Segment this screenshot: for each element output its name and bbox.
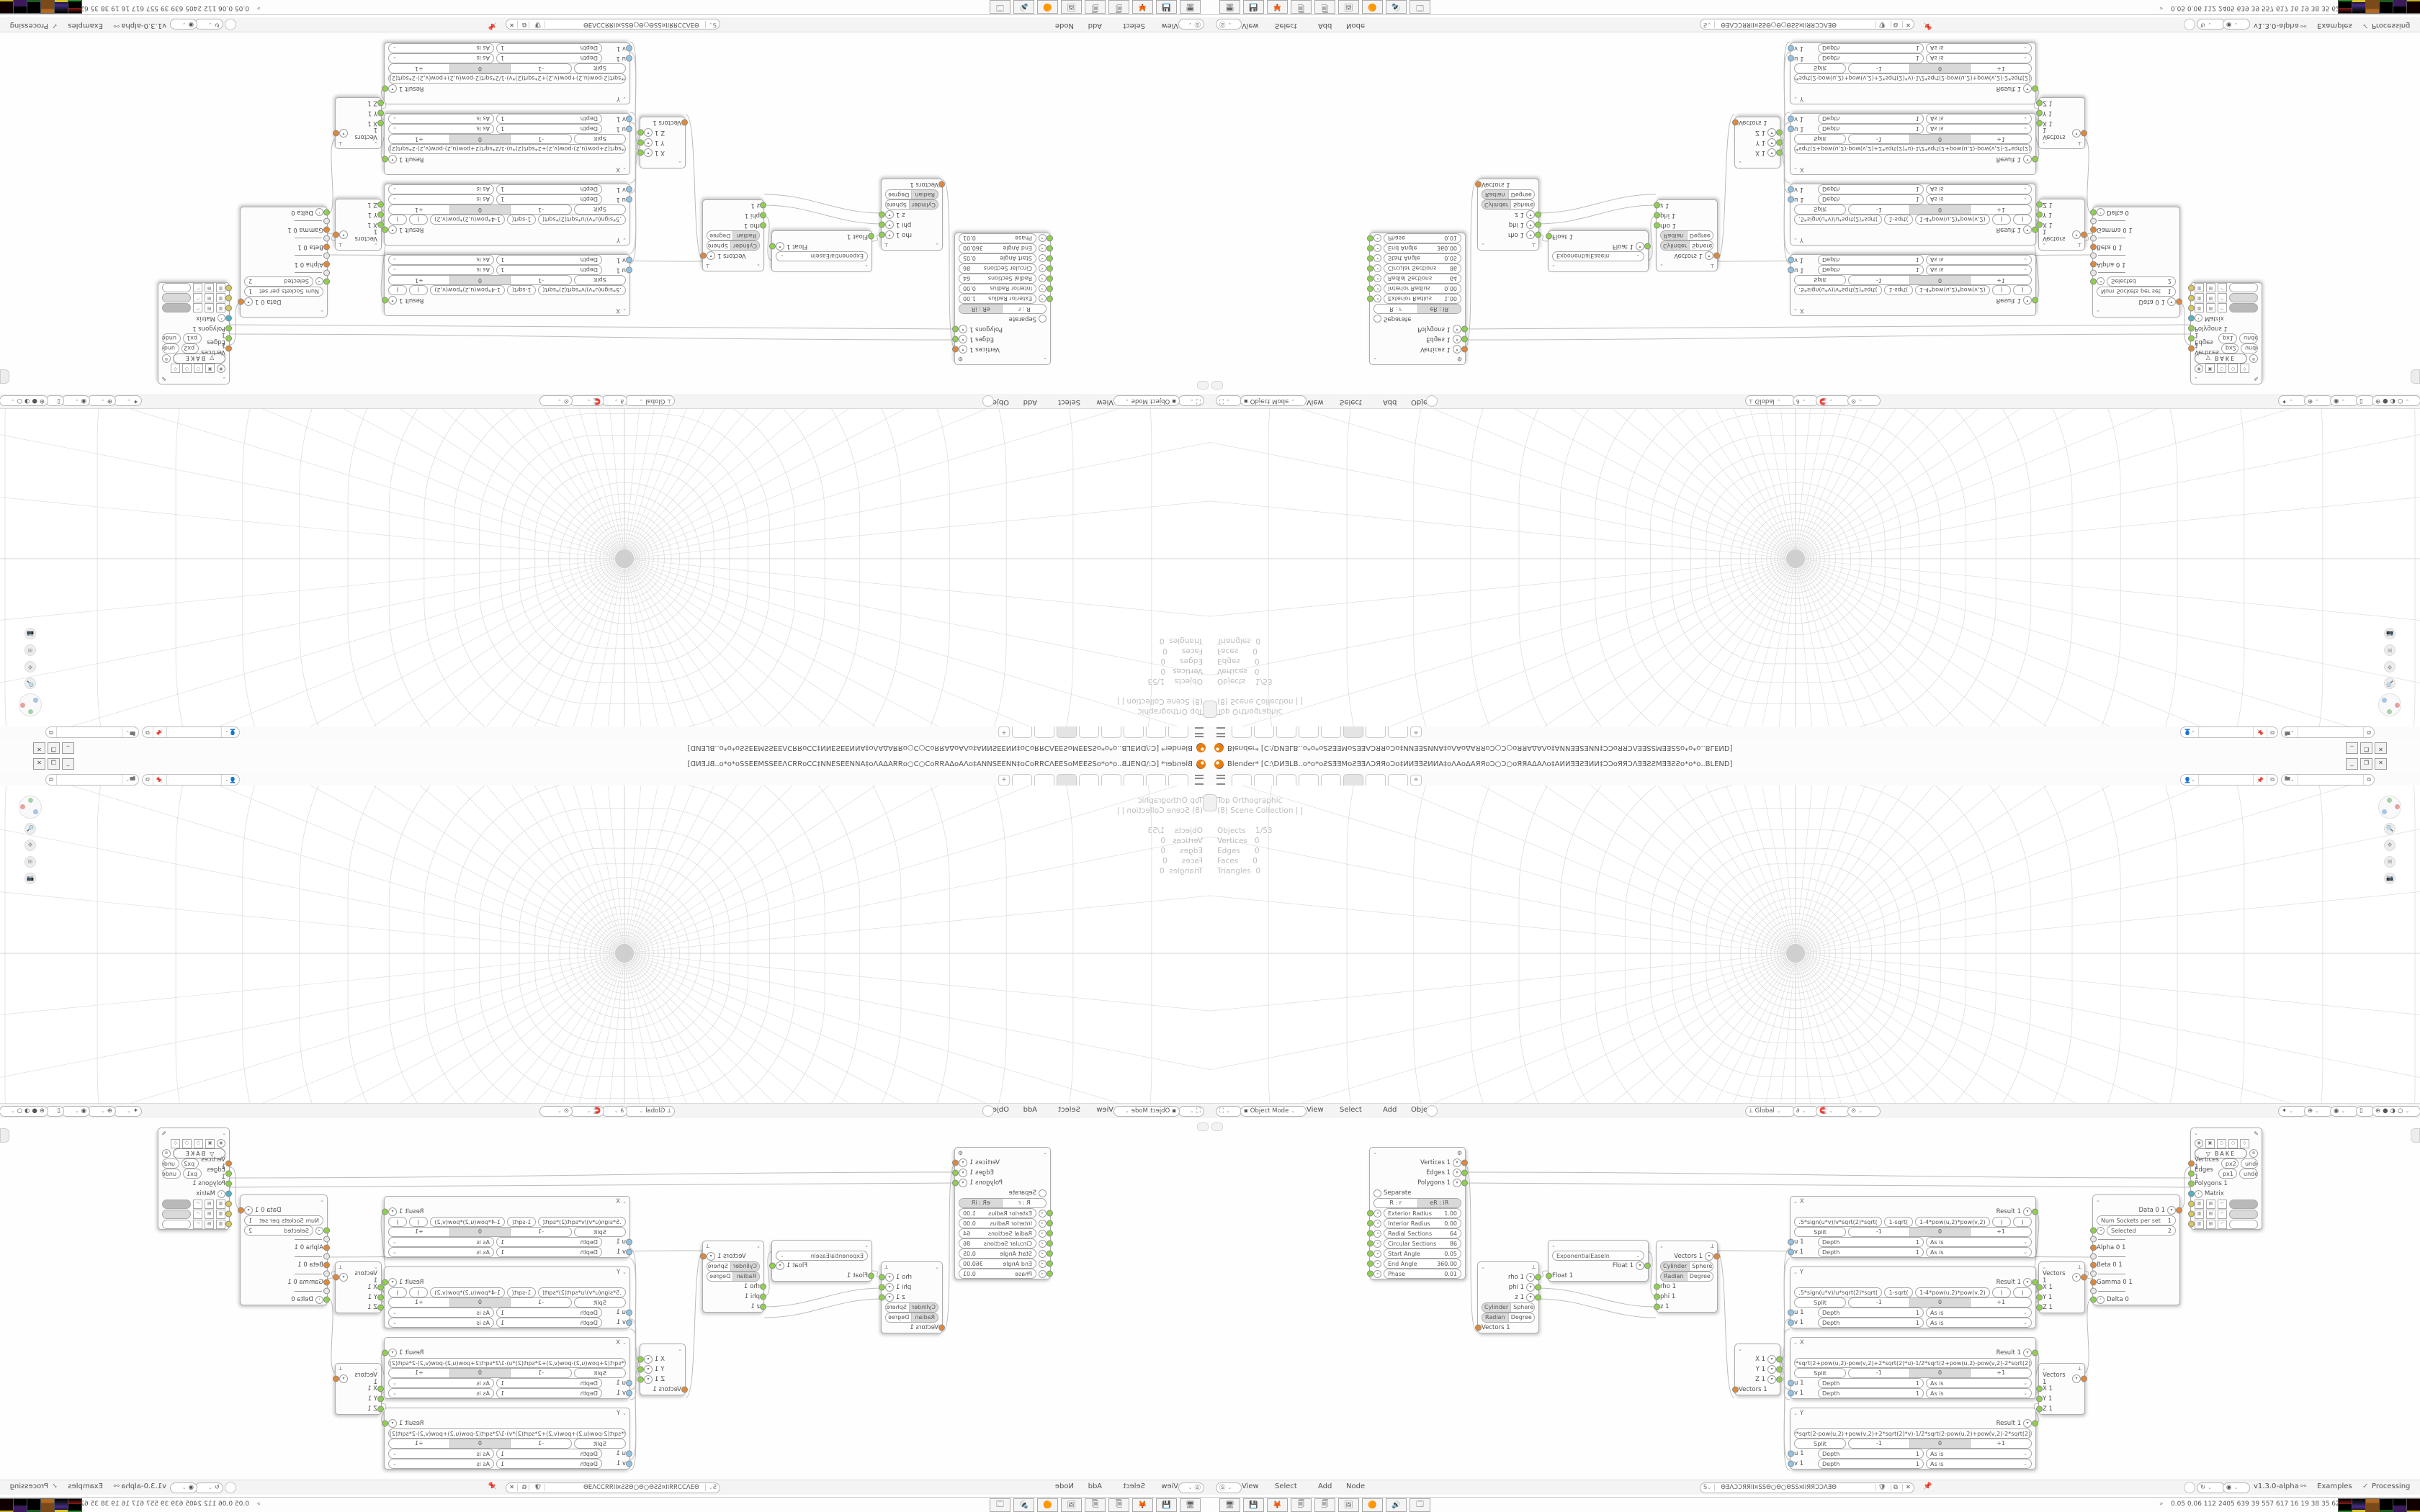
segmented-buttons[interactable]: CylinderSphere bbox=[882, 1302, 942, 1313]
input-row[interactable]: u 1Depth1As is⌄ bbox=[385, 53, 629, 63]
close-button[interactable]: ✕ bbox=[33, 758, 45, 770]
output-socket[interactable] bbox=[1776, 1377, 1783, 1383]
input-socket[interactable] bbox=[377, 212, 384, 218]
socket-menu-icon[interactable]: ▾ bbox=[644, 148, 653, 157]
new-tree-button[interactable] bbox=[225, 19, 236, 30]
documents-icon[interactable]: 🗐 bbox=[1314, 1498, 1335, 1512]
split-row[interactable]: Split-10+1 bbox=[385, 1439, 629, 1449]
persp-icon[interactable]: ⊞ bbox=[24, 856, 36, 868]
socket-menu-icon[interactable]: ▾ bbox=[1526, 1283, 1535, 1292]
input-row[interactable]: Vectors 1 bbox=[882, 1323, 942, 1333]
input-socket[interactable] bbox=[1367, 235, 1373, 242]
gizmos-dropdown[interactable]: ⊕⌄ bbox=[2304, 396, 2333, 407]
input-socket[interactable] bbox=[1047, 1220, 1053, 1227]
workspace-tab[interactable] bbox=[1366, 774, 1386, 786]
enum-dropdown-row[interactable]: ExponentialEaseIn⌄ bbox=[1549, 251, 1648, 261]
editor-type-dropdown[interactable]: ⛶⌄ bbox=[1178, 396, 1204, 407]
input-socket[interactable] bbox=[2188, 285, 2195, 292]
input-socket[interactable] bbox=[1367, 1241, 1373, 1247]
node-header[interactable]: ⌄⟂ bbox=[1657, 261, 1717, 271]
input-socket[interactable] bbox=[2188, 1191, 2195, 1197]
output-socket[interactable] bbox=[382, 156, 388, 163]
input-socket[interactable] bbox=[2090, 1297, 2097, 1303]
value-field-row[interactable]: ◂Exterior Radius1.00 bbox=[955, 294, 1050, 304]
input-row[interactable]: u 1Depth1As is⌄ bbox=[385, 1378, 629, 1388]
output-socket[interactable] bbox=[879, 232, 885, 238]
visibility-dropdown[interactable]: ✦⌄ bbox=[113, 1106, 142, 1117]
input-socket[interactable] bbox=[626, 55, 632, 62]
node-header[interactable]: ⌄Y bbox=[1791, 1267, 2035, 1277]
tray-graph-icon[interactable] bbox=[2406, 0, 2420, 14]
color-row[interactable]: ▥▤⌐ bbox=[2191, 283, 2262, 293]
input-row[interactable]: u 1Depth1As is⌄ bbox=[385, 1449, 629, 1459]
socket-menu-icon[interactable]: ▾ bbox=[244, 297, 253, 306]
node-header-icon[interactable]: ⚙ bbox=[958, 1150, 963, 1156]
separator-socket-row[interactable] bbox=[2093, 252, 2179, 259]
input-socket[interactable] bbox=[2188, 325, 2195, 332]
output-socket[interactable] bbox=[1461, 1180, 1468, 1187]
input-row[interactable]: v 1Depth1As is⌄ bbox=[1791, 1459, 2035, 1469]
visibility-dropdown[interactable]: ✦⌄ bbox=[113, 396, 142, 407]
menu-hamburger-icon[interactable] bbox=[1195, 775, 1204, 785]
pivot-dropdown[interactable]: ∂⌄ bbox=[1793, 396, 1819, 407]
input-socket[interactable] bbox=[1788, 1461, 1794, 1467]
menu-view[interactable]: View bbox=[1307, 1106, 1324, 1114]
floppy-icon[interactable]: 💾 bbox=[1243, 1498, 1264, 1512]
unlink-icon[interactable]: ✕ bbox=[1902, 21, 1914, 28]
socket-menu-icon[interactable]: ▾ bbox=[644, 1375, 653, 1384]
formula-field[interactable]: .5*sign(u*v)/u*sqrt(2)*sqrt(1-sqrt(1-4*p… bbox=[1791, 215, 2035, 225]
unlink-icon[interactable]: ✕ bbox=[506, 21, 518, 28]
output-socket[interactable] bbox=[2032, 1209, 2038, 1215]
input-row[interactable]: Y 1 bbox=[336, 210, 381, 220]
navigation-gizmo[interactable] bbox=[19, 796, 42, 819]
input-row[interactable]: v 1Depth1As is⌄ bbox=[1791, 114, 2035, 124]
workspace-tab[interactable] bbox=[1101, 726, 1121, 738]
overlays-dropdown[interactable]: ◉⌄ bbox=[61, 396, 90, 407]
value-field-row[interactable]: ◂Start Angle0.05 bbox=[1370, 1248, 1465, 1259]
output-socket[interactable] bbox=[952, 326, 959, 333]
output-row[interactable]: rho 1▾ bbox=[882, 1272, 942, 1282]
separator-socket-row[interactable] bbox=[2093, 1270, 2179, 1277]
scene-name-field[interactable] bbox=[2199, 775, 2254, 785]
node-viewer-draw[interactable]: ⌄✎◉ ▣○○◇▽ BAKE⊚Vertices 1px2undefined⌄Ed… bbox=[2190, 1128, 2262, 1230]
input-row[interactable]: Polygons 1 bbox=[158, 1179, 229, 1189]
color-swatch[interactable] bbox=[2229, 284, 2258, 293]
color-swatch[interactable] bbox=[162, 294, 191, 303]
menu-add[interactable]: Add bbox=[1088, 1482, 1102, 1490]
nodetree-name-field[interactable]: ΘƎΛƆƆЯЯII¤SSΘ○Θ○ΘSS¤IIЯЯƆƆΛƎΘ bbox=[1717, 1484, 1873, 1491]
segmented-buttons[interactable]: CylinderSphere bbox=[703, 240, 763, 251]
zoom-icon[interactable]: 🔍 bbox=[2384, 823, 2396, 834]
menu-view[interactable]: View bbox=[1161, 1482, 1178, 1490]
input-row[interactable]: phi 1 bbox=[703, 210, 763, 220]
input-socket[interactable] bbox=[1788, 1239, 1794, 1246]
documents-icon[interactable]: 🗐 bbox=[1291, 0, 1312, 14]
input-socket[interactable] bbox=[1788, 1451, 1794, 1457]
node-formula-x1[interactable]: ⌄XResult 1▾.5*sign(u*v)/v*sqrt(2)*sqrt(1… bbox=[1790, 254, 2036, 316]
node-viewer-draw[interactable]: ⌄✎◉ ▣○○◇▽ BAKE⊚Vertices 1px2undefined⌄Ed… bbox=[158, 1128, 230, 1230]
examples-menu[interactable]: Examples bbox=[2317, 1482, 2352, 1490]
viewlayer-name-field[interactable] bbox=[56, 727, 122, 737]
input-socket[interactable] bbox=[323, 1228, 330, 1234]
proportional-dropdown[interactable]: ⊙⌄ bbox=[1847, 1106, 1881, 1117]
socket-menu-icon[interactable]: ▾ bbox=[1453, 1179, 1461, 1187]
input-socket[interactable] bbox=[1367, 1220, 1373, 1227]
scene-selector[interactable]: 👤⌄ 📌 ⧉ bbox=[142, 726, 240, 738]
tray-graph-icon[interactable] bbox=[54, 1498, 68, 1512]
output-row[interactable]: Edges 1▾ bbox=[955, 334, 1050, 344]
output-socket[interactable] bbox=[382, 1209, 388, 1215]
output-socket[interactable] bbox=[769, 243, 776, 250]
workspace-tab[interactable] bbox=[1299, 774, 1319, 786]
output-socket[interactable] bbox=[238, 1207, 244, 1214]
output-row[interactable]: Z 1▾ bbox=[640, 1374, 685, 1385]
input-socket[interactable] bbox=[323, 253, 330, 259]
input-socket[interactable] bbox=[2188, 1201, 2195, 1207]
input-socket[interactable] bbox=[2090, 1271, 2097, 1277]
output-socket[interactable] bbox=[1776, 150, 1783, 156]
input-socket[interactable] bbox=[323, 1236, 330, 1243]
input-row[interactable]: Z 1 bbox=[2039, 1302, 2084, 1313]
output-row[interactable]: Vectors 1▾ bbox=[2039, 1272, 2084, 1282]
output-row[interactable]: Result 1▾ bbox=[385, 154, 629, 164]
output-row[interactable]: rho 1▾ bbox=[1478, 1272, 1538, 1282]
input-row[interactable]: u 1Depth1As is⌄ bbox=[1791, 1308, 2035, 1318]
nodetree-name-field[interactable]: ΘƎΛƆƆЯЯII¤SSΘ○Θ○ΘSS¤IIЯЯƆƆΛƎΘ bbox=[547, 1484, 703, 1491]
output-row[interactable]: X 1▾ bbox=[1735, 1354, 1780, 1364]
output-socket[interactable] bbox=[952, 1160, 959, 1166]
scene-name-field[interactable] bbox=[166, 775, 221, 785]
socket-menu-icon[interactable]: ▾ bbox=[2072, 230, 2081, 239]
output-socket[interactable] bbox=[2081, 1376, 2087, 1382]
socket-menu-icon[interactable]: ▾ bbox=[885, 210, 894, 219]
input-socket[interactable] bbox=[377, 120, 384, 127]
value-field-row[interactable]: ◂Start Angle0.05 bbox=[955, 253, 1050, 264]
input-socket[interactable] bbox=[225, 1171, 232, 1177]
input-socket[interactable] bbox=[2090, 279, 2097, 285]
search-icon[interactable] bbox=[1426, 395, 1438, 407]
separator-socket-row[interactable] bbox=[2093, 235, 2179, 242]
input-socket[interactable] bbox=[1367, 296, 1373, 302]
socket-menu-icon[interactable]: ▾ bbox=[1767, 1365, 1776, 1374]
input-socket[interactable] bbox=[377, 1396, 384, 1403]
tray-graph-icon[interactable] bbox=[13, 1498, 27, 1512]
floppy-icon[interactable]: 💾 bbox=[1156, 1498, 1177, 1512]
input-row[interactable]: X 1 bbox=[336, 1384, 381, 1394]
tray-graph-icon[interactable] bbox=[2352, 1498, 2366, 1512]
input-socket[interactable] bbox=[323, 1271, 330, 1277]
tray-graph-icon[interactable] bbox=[2338, 1498, 2352, 1512]
editor-type-dropdown[interactable]: Ⓢ⌄ bbox=[1178, 1482, 1204, 1493]
input-row[interactable]: Beta 0 1 bbox=[2093, 1260, 2179, 1270]
output-socket[interactable] bbox=[637, 1367, 644, 1373]
input-row[interactable]: Gamma 0 1 bbox=[2093, 225, 2179, 235]
node-polar-out[interactable]: ⌄⟂rho 1▾phi 1▾z 1▾CylinderSphereRadianDe… bbox=[881, 179, 943, 251]
input-socket[interactable] bbox=[626, 1451, 632, 1457]
firefox-icon[interactable]: 🦊 bbox=[1267, 1498, 1288, 1512]
copy-icon[interactable]: ⧉ bbox=[2267, 727, 2277, 737]
node-header-icon[interactable]: ⟂ bbox=[2078, 241, 2081, 248]
node-formula-y2[interactable]: ⌄YResult 1▾1/2*sqrt(2-pow(u,2)+pow(v,2)+… bbox=[1790, 42, 2036, 104]
output-row[interactable]: Vectors 1▾ bbox=[703, 251, 763, 261]
input-row[interactable]: Vectors 1 bbox=[1478, 1323, 1538, 1333]
workspace-tab[interactable] bbox=[1254, 726, 1274, 738]
output-row[interactable]: Y 1▾ bbox=[1735, 138, 1780, 148]
input-row[interactable]: rho 1 bbox=[1657, 220, 1717, 230]
new-tree-button[interactable] bbox=[2184, 1482, 2195, 1493]
split-row[interactable]: Split-10+1 bbox=[1791, 1297, 2035, 1308]
input-socket[interactable] bbox=[225, 295, 232, 302]
copy-icon[interactable]: ⧉ bbox=[2267, 775, 2277, 785]
input-socket[interactable] bbox=[1546, 233, 1552, 240]
input-row[interactable]: Float 1 bbox=[772, 231, 871, 241]
node-vector-out[interactable]: ⌄X 1▾Y 1▾Z 1▾Vectors 1 bbox=[640, 1344, 686, 1395]
workspace-tab[interactable] bbox=[1057, 726, 1077, 738]
input-socket[interactable] bbox=[2090, 210, 2097, 216]
socket-menu-icon[interactable]: ▾ bbox=[1636, 242, 1644, 251]
segmented-buttons[interactable]: RadianDegree bbox=[703, 230, 763, 240]
input-socket[interactable] bbox=[2090, 253, 2097, 259]
node-vector-out[interactable]: ⌄X 1▾Y 1▾Z 1▾Vectors 1 bbox=[1734, 117, 1780, 168]
speaker-icon[interactable]: 🔊 bbox=[1013, 0, 1034, 14]
socket-menu-icon[interactable]: ▾ bbox=[1705, 251, 1713, 260]
output-row[interactable]: z 1▾ bbox=[882, 1292, 942, 1302]
output-row[interactable]: Vectors 1▾ bbox=[2039, 128, 2084, 138]
pin-icon[interactable]: 📌 bbox=[153, 727, 166, 737]
orientation-dropdown[interactable]: ⟂Global⌄ bbox=[624, 1106, 675, 1117]
output-row[interactable]: Result 1▾ bbox=[385, 1418, 629, 1428]
socket-menu-icon[interactable]: ▾ bbox=[1453, 345, 1461, 354]
shading-mode-buttons[interactable]: ⊕●◑○⌄ bbox=[2372, 1106, 2420, 1117]
node-formula-x1[interactable]: ⌄XResult 1▾.5*sign(u*v)/v*sqrt(2)*sqrt(1… bbox=[1790, 1196, 2036, 1258]
socket-menu-icon[interactable]: ▾ bbox=[2023, 296, 2032, 305]
output-socket[interactable] bbox=[1713, 1254, 1720, 1260]
zoom-icon[interactable]: 🔍 bbox=[2384, 678, 2396, 689]
input-row[interactable]: v 1Depth1As is⌄ bbox=[385, 114, 629, 124]
output-row[interactable]: Result 1▾ bbox=[385, 225, 629, 235]
new-copy-icon[interactable]: ⧉ bbox=[520, 21, 529, 28]
socket-menu-icon[interactable]: ▾ bbox=[388, 1207, 397, 1216]
input-socket[interactable] bbox=[1047, 1251, 1053, 1257]
socket-menu-icon[interactable]: ▾ bbox=[2023, 1278, 2032, 1287]
output-row[interactable]: rho 1▾ bbox=[882, 230, 942, 240]
input-row[interactable]: Vectors 1 bbox=[1735, 1385, 1780, 1395]
input-row[interactable]: v 1Depth1As is⌄ bbox=[1791, 184, 2035, 194]
formula-field[interactable]: 1/2*sqrt(2-pow(u,2)+pow(v,2)+2*sqrt(2)*v… bbox=[1791, 73, 2035, 84]
blender-icon[interactable]: 🟠 bbox=[1037, 1498, 1058, 1512]
camera-icon[interactable]: 📷 bbox=[2384, 873, 2396, 884]
input-row[interactable]: phi 1 bbox=[703, 1292, 763, 1302]
input-row[interactable]: X 1 bbox=[2039, 1282, 2084, 1292]
output-socket[interactable] bbox=[238, 299, 244, 305]
separator-socket-row[interactable] bbox=[2093, 217, 2179, 225]
output-socket[interactable] bbox=[382, 1421, 388, 1427]
color-row[interactable]: ▥▤⌐ bbox=[2191, 293, 2262, 303]
node-header[interactable]: ⌄Y bbox=[385, 1408, 629, 1418]
socket-menu-icon[interactable]: ▾ bbox=[2023, 1349, 2032, 1357]
output-row[interactable]: Result 1▾ bbox=[1791, 84, 2035, 94]
node-header[interactable]: ⌄ bbox=[1549, 1241, 1648, 1251]
input-socket[interactable] bbox=[2090, 1262, 2097, 1269]
output-row[interactable]: Vectors 1▾ bbox=[2039, 1374, 2084, 1384]
output-socket[interactable] bbox=[1776, 140, 1783, 146]
formula-field[interactable]: .5*sign(u*v)/v*sqrt(2)*sqrt(1-sqrt(1-4*p… bbox=[1791, 1217, 2035, 1227]
mode-dropdown[interactable]: ▪Object Mode⌄ bbox=[1240, 1106, 1307, 1117]
output-row[interactable]: Edges 1▾ bbox=[1370, 1168, 1465, 1178]
tray-graph-icon[interactable] bbox=[2352, 0, 2366, 14]
camera-icon[interactable]: 📷 bbox=[2384, 628, 2396, 639]
input-row[interactable]: u 1Depth1As is⌄ bbox=[1791, 194, 2035, 204]
node-header[interactable]: ⌄⟂ bbox=[1478, 1262, 1538, 1272]
proportional-dropdown[interactable]: ⊙⌄ bbox=[1847, 396, 1881, 407]
workspace-tab[interactable] bbox=[1146, 774, 1166, 786]
separator-socket-row[interactable] bbox=[241, 269, 327, 276]
socket-menu-icon[interactable]: ▾ bbox=[776, 242, 784, 251]
input-socket[interactable] bbox=[2090, 235, 2097, 242]
viewlayer-selector[interactable]: 🖿⌄ ⧉ bbox=[2281, 726, 2375, 738]
output-row[interactable]: Vertices 1▾ bbox=[1370, 344, 1465, 354]
input-socket[interactable] bbox=[626, 267, 632, 274]
node-header-icon[interactable]: ⟂ bbox=[339, 140, 342, 147]
input-row[interactable]: Polygons 1 bbox=[2191, 1179, 2262, 1189]
segmented-buttons[interactable]: CylinderSphere bbox=[1478, 1302, 1538, 1313]
node-header[interactable]: ⌄ bbox=[1735, 158, 1780, 168]
input-socket[interactable] bbox=[1047, 246, 1053, 252]
socket-menu-icon[interactable]: ▾ bbox=[707, 251, 715, 260]
pin-icon[interactable]: 📌 bbox=[153, 775, 166, 785]
input-row[interactable]: v 1Depth1As is⌄ bbox=[1791, 1388, 2035, 1398]
input-row[interactable]: •Delta 0 bbox=[2093, 1295, 2179, 1305]
socket-menu-icon[interactable]: ▾ bbox=[339, 1273, 348, 1282]
menu-node[interactable]: Node bbox=[1346, 1482, 1365, 1490]
output-row[interactable]: Polygons 1▾ bbox=[1370, 1178, 1465, 1188]
output-socket[interactable] bbox=[333, 232, 339, 238]
separator-socket-row[interactable] bbox=[2093, 1253, 2179, 1260]
value-field-row[interactable]: Num Sockets per set1 bbox=[241, 287, 327, 297]
input-row[interactable]: z 1 bbox=[703, 1302, 763, 1312]
segmented-buttons[interactable]: RadianDegree bbox=[1657, 230, 1717, 240]
input-socket[interactable] bbox=[1367, 286, 1373, 292]
output-row[interactable]: Edges 1▾ bbox=[955, 1168, 1050, 1178]
node-header[interactable]: ⌄ bbox=[772, 261, 871, 271]
split-row[interactable]: Split-10+1 bbox=[385, 1227, 629, 1237]
minimize-button[interactable]: _ bbox=[62, 758, 74, 770]
add-workspace-button[interactable]: + bbox=[1410, 726, 1422, 737]
formula-field[interactable]: .5*sign(u*v)/u*sqrt(2)*sqrt(1-sqrt(1-4*p… bbox=[385, 1287, 629, 1297]
node-formula-x1[interactable]: ⌄XResult 1▾.5*sign(u*v)/v*sqrt(2)*sqrt(1… bbox=[384, 254, 630, 316]
output-socket[interactable] bbox=[700, 253, 707, 259]
node-header[interactable]: ⌄X bbox=[385, 305, 629, 315]
value-field-row[interactable]: ◂Phase0.01 bbox=[1370, 1269, 1465, 1279]
input-socket[interactable] bbox=[2188, 336, 2195, 342]
input-row[interactable]: Edges 1px1undefined⌄ bbox=[2191, 1169, 2262, 1179]
input-socket[interactable] bbox=[1788, 1390, 1794, 1397]
input-socket[interactable] bbox=[323, 1279, 330, 1286]
input-row[interactable]: X 1 bbox=[2039, 118, 2084, 128]
menu-view[interactable]: View bbox=[1307, 398, 1324, 406]
blender-icon[interactable]: 🟠 bbox=[1362, 0, 1383, 14]
terminal-icon[interactable]: 🖥 bbox=[1180, 0, 1201, 14]
segmented-buttons[interactable]: RadianDegree bbox=[882, 1313, 942, 1323]
output-socket[interactable] bbox=[382, 297, 388, 304]
input-row[interactable]: u 1Depth1As is⌄ bbox=[385, 124, 629, 134]
viewport-nav-buttons[interactable]: 🔍 ✥ ⊞ 📷 bbox=[2384, 823, 2396, 884]
documents-icon[interactable]: 🗐 bbox=[1108, 0, 1129, 14]
snap-dropdown[interactable]: 🧲⌄ bbox=[1816, 396, 1850, 407]
visibility-dropdown[interactable]: ✦⌄ bbox=[2278, 1106, 2307, 1117]
node-header-icon[interactable]: ⟂ bbox=[2078, 1365, 2081, 1372]
input-socket[interactable] bbox=[323, 210, 330, 216]
update-dropdown[interactable]: ↻⌄ bbox=[194, 1482, 223, 1493]
tray-graph-icon[interactable] bbox=[40, 0, 55, 14]
window-image-icon[interactable]: 🖼 bbox=[1338, 0, 1359, 14]
output-socket[interactable] bbox=[2032, 156, 2038, 163]
value-field-row[interactable]: ◂Exterior Radius1.00 bbox=[1370, 294, 1465, 304]
input-socket[interactable] bbox=[626, 1310, 632, 1316]
node-header[interactable]: ⌄⟂ bbox=[882, 1262, 942, 1272]
toolbar-toggle-tab[interactable] bbox=[1203, 794, 1210, 811]
gizmos-dropdown[interactable]: ⊕⌄ bbox=[87, 396, 116, 407]
output-row[interactable]: Z 1▾ bbox=[1735, 1374, 1780, 1385]
input-socket[interactable] bbox=[323, 1245, 330, 1251]
input-socket[interactable] bbox=[1047, 235, 1053, 242]
new-tree-button[interactable] bbox=[2184, 19, 2195, 30]
add-workspace-button[interactable]: + bbox=[998, 726, 1010, 737]
sidebar-toggle-tab[interactable] bbox=[2411, 1128, 2420, 1143]
input-row[interactable]: Z 1 bbox=[336, 1404, 381, 1414]
processing-toggle-label[interactable]: Processing bbox=[10, 22, 48, 30]
output-socket[interactable] bbox=[1776, 1356, 1783, 1363]
output-row[interactable]: Result 1▾ bbox=[1791, 154, 2035, 164]
node-formula-y1[interactable]: ⌄YResult 1▾.5*sign(u*v)/u*sqrt(2)*sqrt(1… bbox=[1790, 1266, 2036, 1328]
input-row[interactable]: Float 1 bbox=[772, 1271, 871, 1281]
toggle-row[interactable]: Separate bbox=[1370, 314, 1465, 324]
display-toggles-row[interactable]: ◉ ▣○○◇ bbox=[2191, 1138, 2262, 1148]
output-row[interactable]: Result 1▾ bbox=[1791, 1207, 2035, 1217]
nodetree-browse-icon[interactable]: 𝕊⌄ bbox=[705, 1484, 720, 1491]
viewlayer-selector[interactable]: 🖿⌄ ⧉ bbox=[2281, 774, 2375, 786]
separator-socket-row[interactable] bbox=[241, 252, 327, 259]
input-row[interactable]: u 1Depth1As is⌄ bbox=[385, 1308, 629, 1318]
node-header[interactable]: ⌄X bbox=[1791, 1338, 2035, 1348]
output-row[interactable]: Result 1▾ bbox=[1791, 295, 2035, 305]
input-row[interactable]: Z 1 bbox=[336, 199, 381, 210]
new-copy-icon[interactable]: ⧉ bbox=[1891, 1484, 1900, 1491]
blender-icon[interactable]: 🟠 bbox=[1037, 0, 1058, 14]
toggle-row[interactable]: Separate bbox=[955, 314, 1050, 324]
new-copy-icon[interactable]: ⧉ bbox=[520, 1484, 529, 1491]
segmented-buttons[interactable]: RadianDegree bbox=[1657, 1272, 1717, 1282]
tray-graph-icon[interactable] bbox=[27, 0, 41, 14]
gizmos-dropdown[interactable]: ⊕⌄ bbox=[2304, 1106, 2333, 1117]
viewlayer-name-field[interactable] bbox=[2298, 727, 2364, 737]
input-socket[interactable] bbox=[1047, 276, 1053, 282]
input-socket[interactable] bbox=[1367, 266, 1373, 272]
formula-field[interactable]: .5*sign(u*v)/u*sqrt(2)*sqrt(1-sqrt(1-4*p… bbox=[1791, 1287, 2035, 1297]
node-vector-in-2[interactable]: ⌄⟂Vectors 1▾X 1Y 1Z 1 bbox=[2038, 97, 2085, 149]
menu-select[interactable]: Select bbox=[1275, 1482, 1297, 1490]
node-header[interactable]: ⌄ bbox=[772, 1241, 871, 1251]
window-titlebar[interactable]: Blender* [C:\DИƎLB..ᴏ*ᴏ*ᴏƧSƎƎMᴏƧƎƎΛƆЯЯᴏƆ… bbox=[1210, 739, 2420, 756]
workspace-tab[interactable] bbox=[1012, 774, 1032, 786]
socket-menu-icon[interactable]: ▾ bbox=[959, 1179, 967, 1187]
socket-menu-icon[interactable]: ▾ bbox=[776, 1261, 784, 1270]
viewlayer-name-field[interactable] bbox=[2298, 775, 2364, 785]
input-socket[interactable] bbox=[1654, 1294, 1660, 1300]
new-copy-icon[interactable]: ⧉ bbox=[1891, 21, 1900, 28]
input-row[interactable]: Alpha 0 1 bbox=[241, 259, 327, 269]
